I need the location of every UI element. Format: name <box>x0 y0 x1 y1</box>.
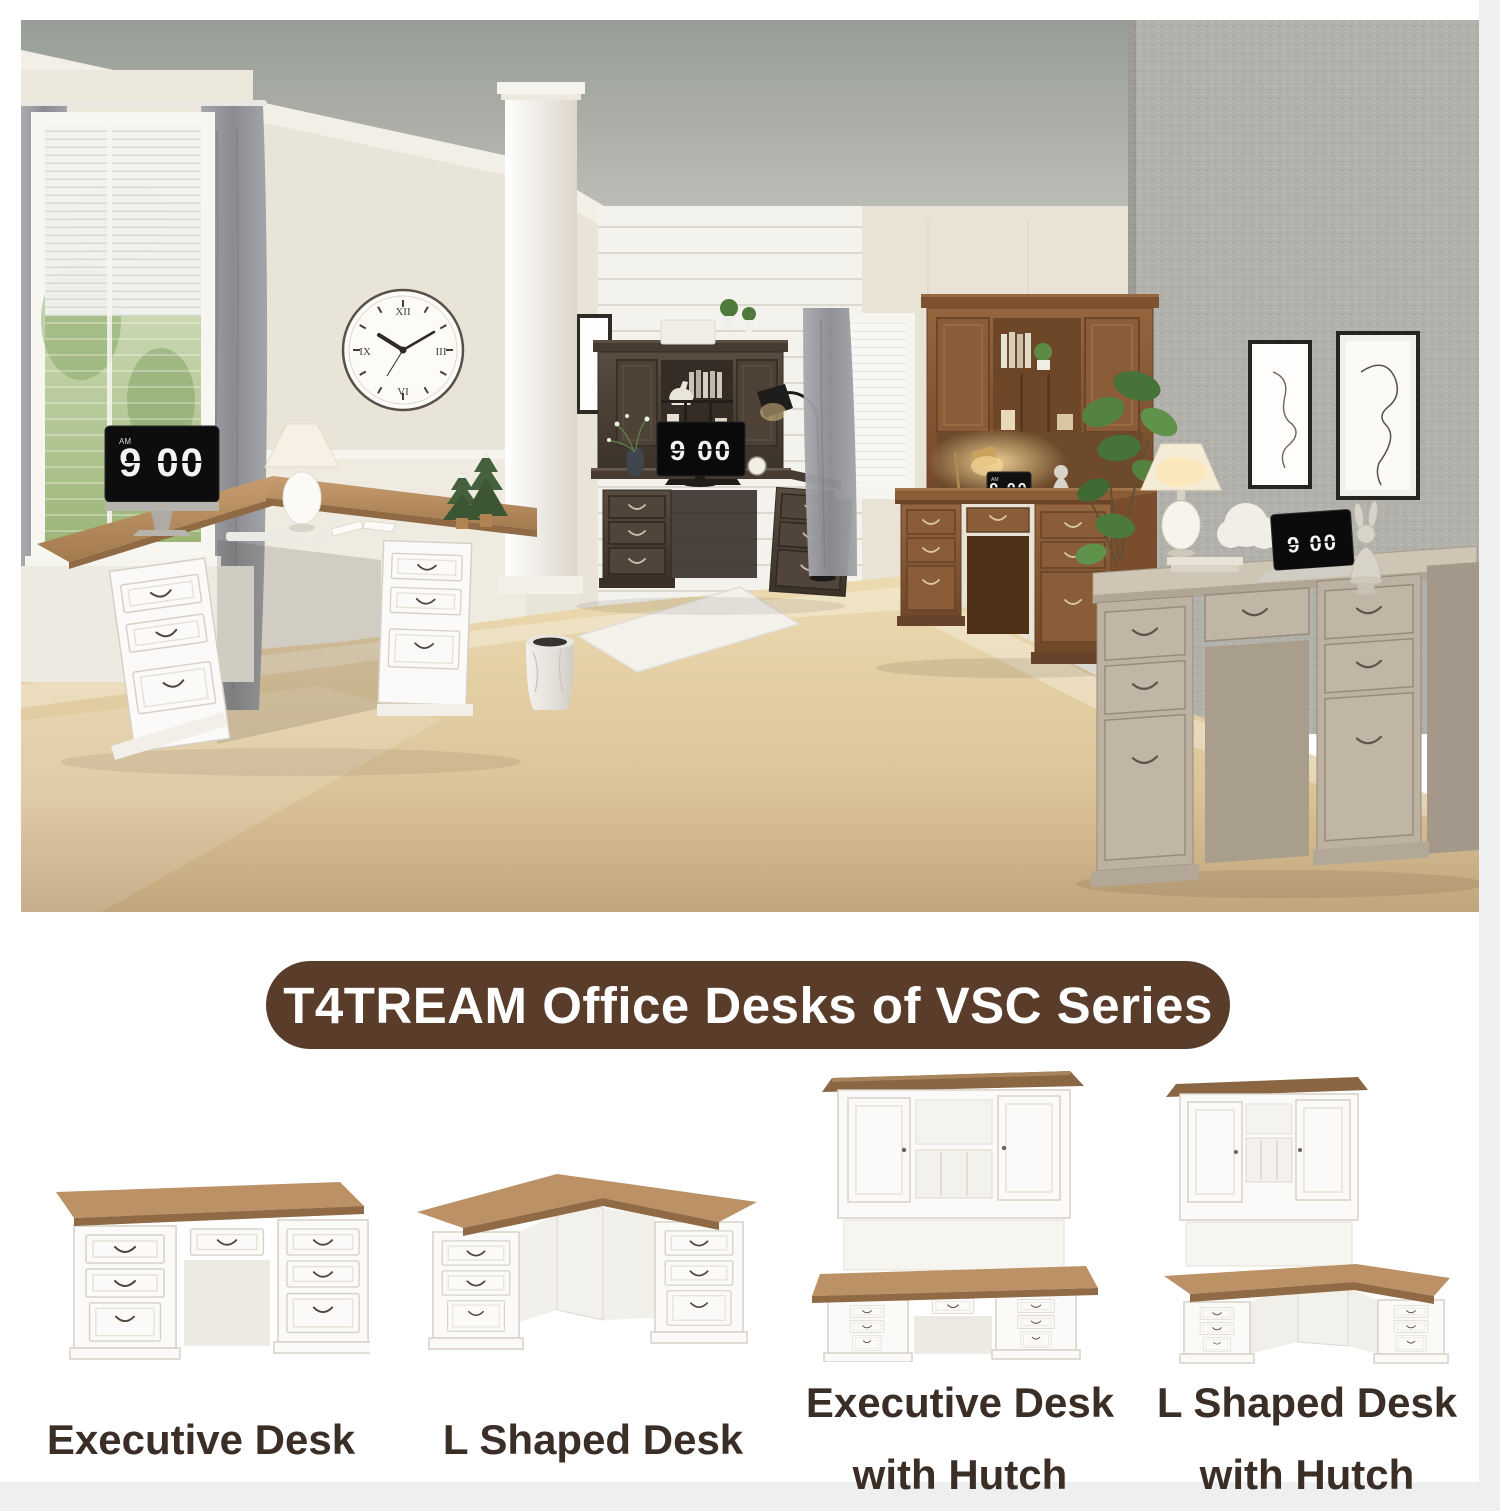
cactus-plant <box>1034 343 1052 361</box>
caption-line: L Shaped Desk <box>423 1404 763 1476</box>
caption-line: with Hutch <box>790 1439 1130 1511</box>
caption-executive-desk-with-hutch: Executive Desk with Hutch <box>790 1367 1130 1511</box>
middle-curtain <box>803 308 857 576</box>
series-banner: T4TREAM Office Desks of VSC Series <box>266 961 1230 1049</box>
marble-waste-bin <box>526 635 574 710</box>
clock-numeral-9: IX <box>359 346 371 358</box>
window-blinds <box>45 126 201 316</box>
wall-clock: XII III VI IX <box>343 290 463 410</box>
thumb-l-shaped-desk-with-hutch <box>1148 1066 1458 1366</box>
clock-numeral-6: VI <box>397 386 409 398</box>
room-photo: XII III VI IX <box>21 20 1479 912</box>
gray-desk-body <box>1091 546 1479 887</box>
image-canvas: XII III VI IX <box>0 0 1479 1482</box>
room-scene: XII III VI IX <box>21 20 1479 912</box>
flip-clock-am: AM <box>119 437 131 446</box>
topiary-plant <box>720 299 738 317</box>
storage-box <box>661 320 715 344</box>
curtain-rod <box>21 100 267 106</box>
wall-art-right <box>1338 333 1418 498</box>
thumb-executive-desk <box>40 1158 370 1373</box>
clock-numeral-3: III <box>436 346 447 358</box>
series-banner-text: T4TREAM Office Desks of VSC Series <box>283 976 1213 1035</box>
svg-text:AM: AM <box>991 477 999 483</box>
white-desk-right-pedestal <box>378 541 472 706</box>
thumb-executive-desk-with-hutch <box>812 1062 1102 1362</box>
caption-l-shaped-desk-with-hutch: L Shaped Desk with Hutch <box>1135 1367 1479 1511</box>
caption-l-shaped-desk: L Shaped Desk <box>423 1404 763 1476</box>
brown-hutch-door-left <box>937 318 989 432</box>
amazon-product-image-page: { "banner": { "text": "T4TREAM Office De… <box>0 0 1500 1500</box>
thumb-l-shaped-desk <box>405 1152 765 1367</box>
caption-line: Executive Desk <box>31 1404 371 1476</box>
clock-numeral-12: XII <box>395 306 411 318</box>
caption-line: Executive Desk <box>790 1367 1130 1439</box>
wall-art-left <box>1250 342 1310 487</box>
caption-line: L Shaped Desk <box>1135 1367 1479 1439</box>
book-stack <box>1167 557 1243 565</box>
caption-line: with Hutch <box>1135 1439 1479 1511</box>
caption-executive-desk: Executive Desk <box>31 1404 371 1476</box>
hutch-books <box>689 370 722 398</box>
small-desk-clock <box>748 457 766 475</box>
